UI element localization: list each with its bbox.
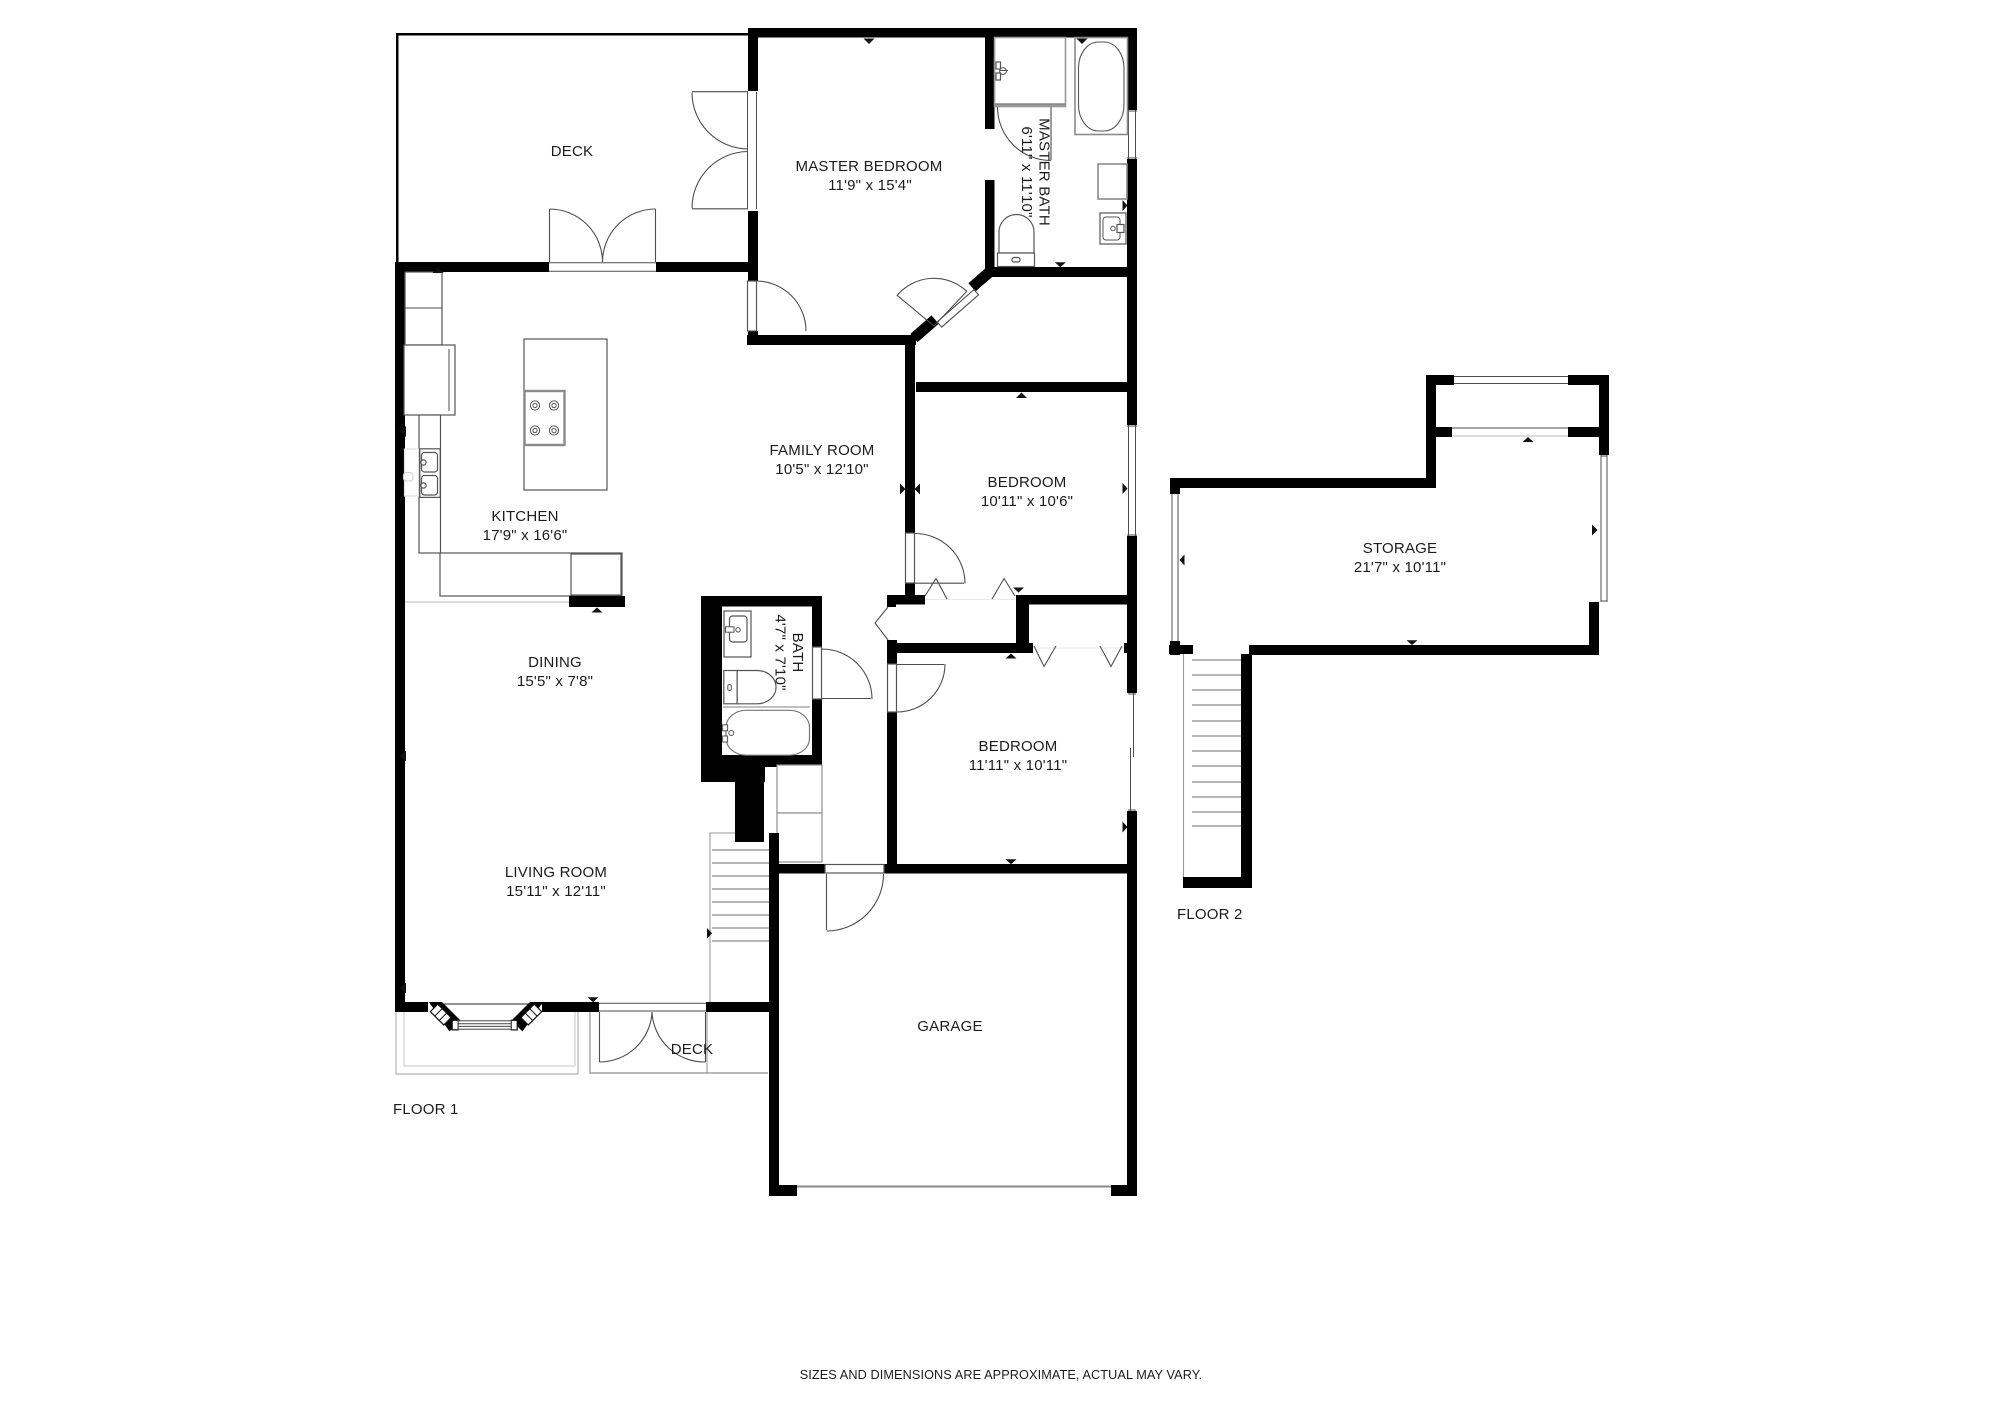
svg-text:21'7" x 10'11": 21'7" x 10'11" (1354, 559, 1446, 576)
svg-text:DECK: DECK (671, 1041, 713, 1058)
svg-text:BEDROOM: BEDROOM (979, 738, 1058, 755)
svg-text:15'5" x 7'8": 15'5" x 7'8" (517, 673, 593, 690)
svg-text:MASTER BEDROOM: MASTER BEDROOM (796, 158, 943, 175)
svg-text:BATH: BATH (789, 633, 806, 673)
svg-text:LIVING ROOM: LIVING ROOM (505, 864, 607, 881)
svg-text:17'9" x 16'6": 17'9" x 16'6" (483, 527, 568, 544)
svg-text:11'9" x 15'4": 11'9" x 15'4" (828, 177, 912, 194)
svg-text:6'11" x 11'10": 6'11" x 11'10" (1018, 126, 1035, 217)
svg-text:FLOOR 1: FLOOR 1 (393, 1101, 459, 1118)
svg-text:GARAGE: GARAGE (917, 1018, 982, 1035)
svg-text:FLOOR 2: FLOOR 2 (1177, 906, 1243, 923)
svg-text:DINING: DINING (528, 654, 582, 671)
svg-text:4'7" x 7'10": 4'7" x 7'10" (772, 614, 789, 690)
svg-text:BEDROOM: BEDROOM (988, 474, 1067, 491)
svg-text:MASTER BATH: MASTER BATH (1036, 118, 1053, 226)
svg-text:KITCHEN: KITCHEN (491, 508, 558, 525)
svg-text:STORAGE: STORAGE (1363, 540, 1437, 557)
svg-text:10'5" x 12'10": 10'5" x 12'10" (775, 461, 868, 478)
svg-text:DECK: DECK (551, 143, 593, 160)
svg-text:11'11" x 10'11": 11'11" x 10'11" (969, 757, 1068, 774)
svg-text:FAMILY ROOM: FAMILY ROOM (770, 442, 875, 459)
svg-text:15'11" x 12'11": 15'11" x 12'11" (506, 883, 606, 900)
svg-text:SIZES AND DIMENSIONS ARE APPRO: SIZES AND DIMENSIONS ARE APPROXIMATE, AC… (800, 1368, 1203, 1382)
svg-text:10'11" x 10'6": 10'11" x 10'6" (981, 493, 1073, 510)
